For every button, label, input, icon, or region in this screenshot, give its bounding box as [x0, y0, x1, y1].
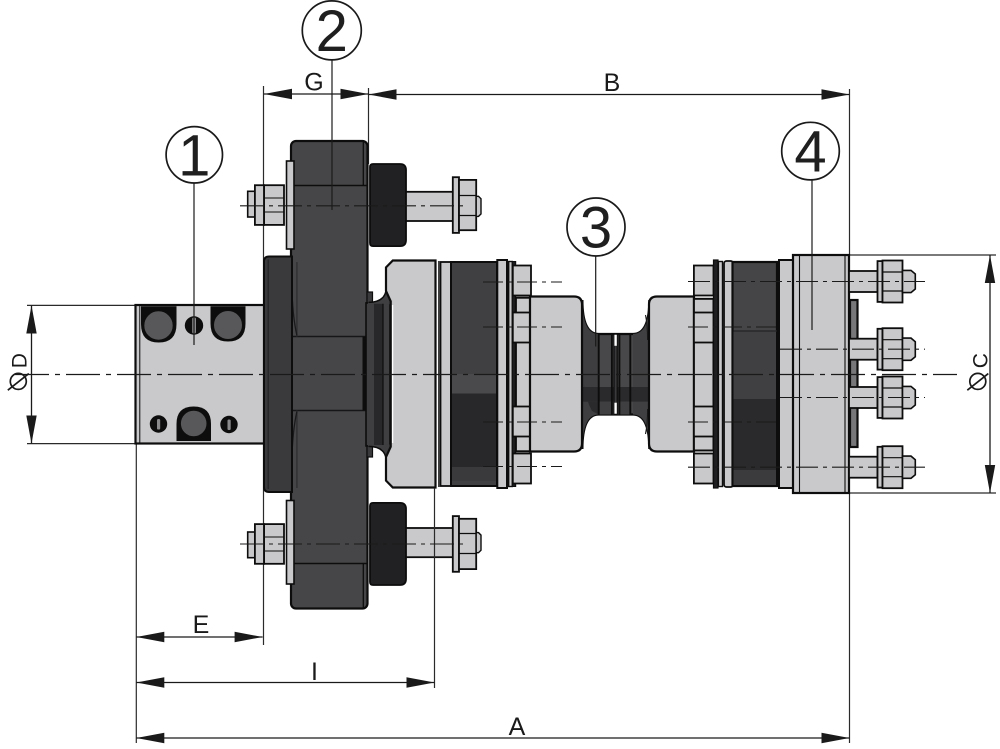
svg-text:B: B [604, 69, 621, 97]
svg-text:2: 2 [316, 0, 348, 64]
svg-text:D: D [8, 353, 31, 368]
svg-text:3: 3 [580, 196, 612, 261]
svg-text:A: A [509, 713, 526, 741]
svg-text:G: G [304, 69, 323, 97]
svg-text:I: I [311, 658, 318, 686]
svg-text:E: E [193, 611, 210, 639]
svg-text:4: 4 [794, 120, 826, 185]
svg-text:1: 1 [178, 123, 210, 188]
svg-text:C: C [969, 353, 992, 368]
